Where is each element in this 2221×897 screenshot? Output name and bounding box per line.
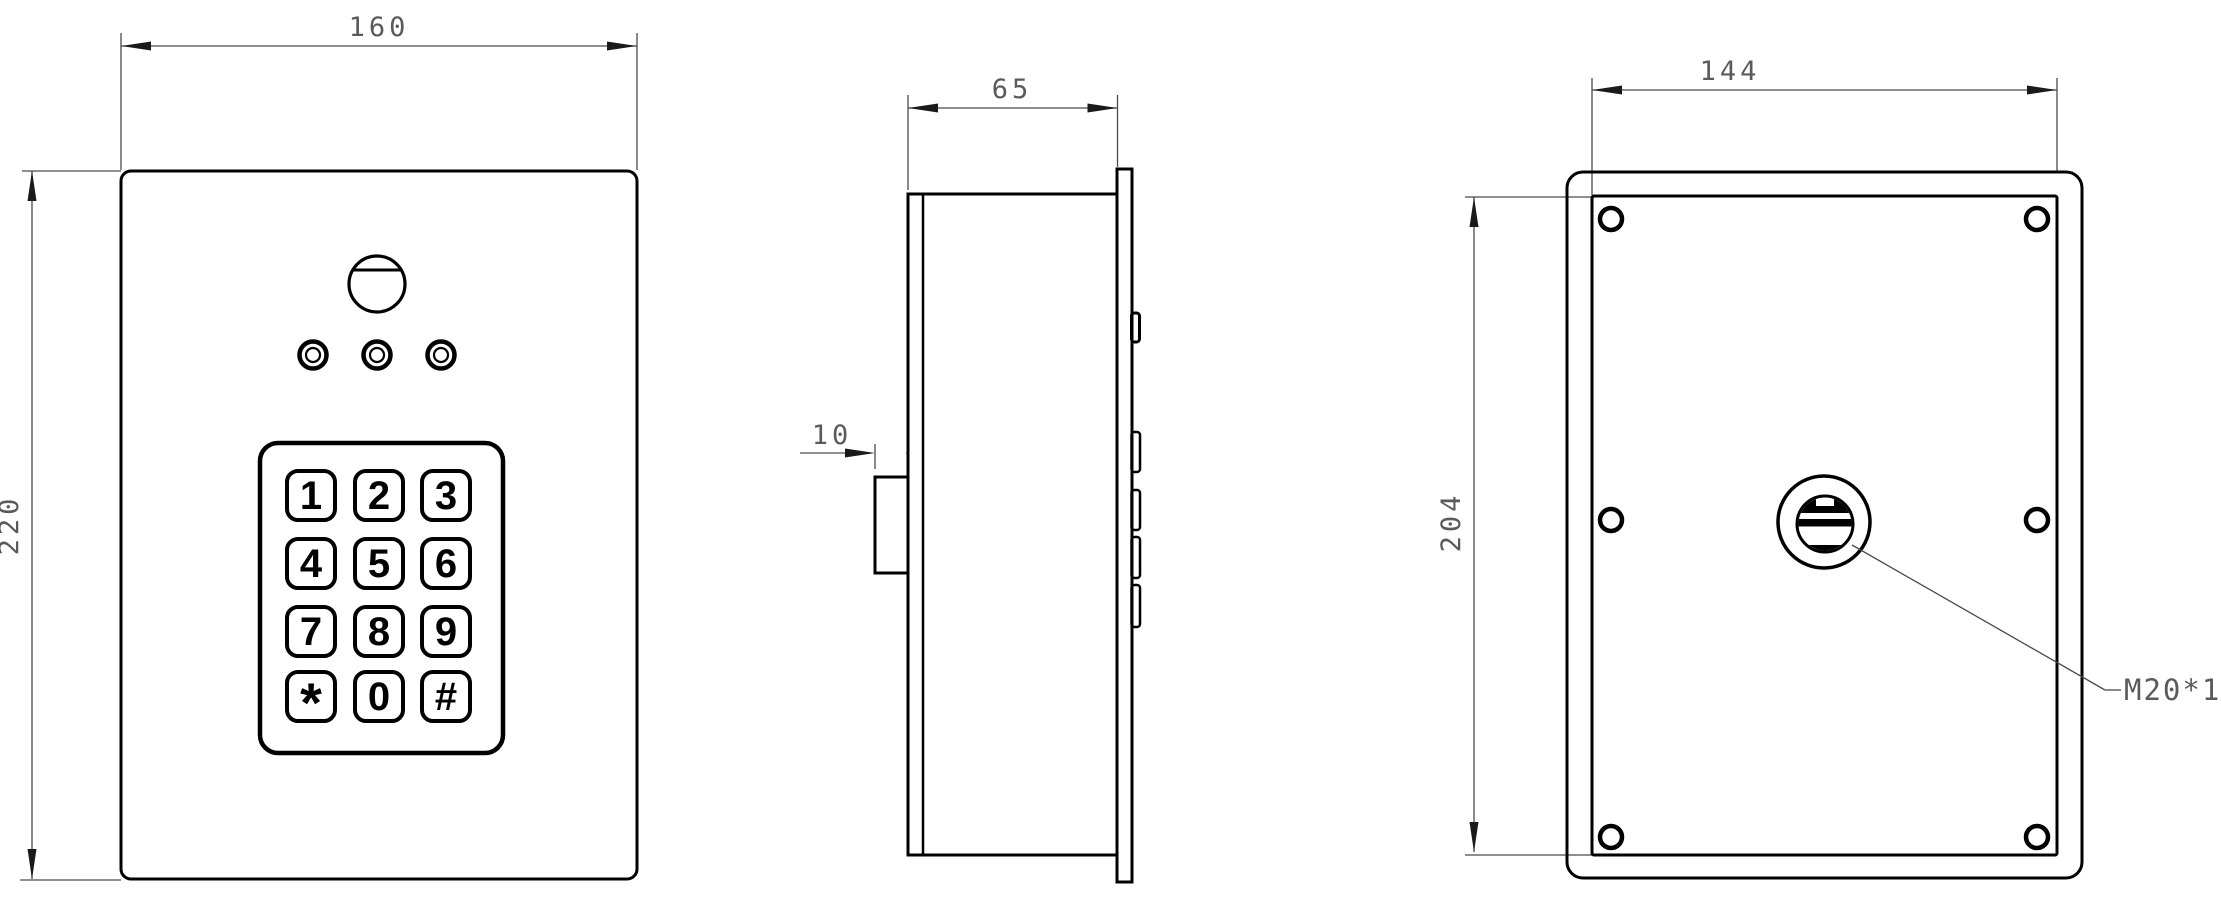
- keypad-key-8-label: 8: [368, 610, 390, 654]
- front-view: 160 220: [0, 12, 637, 880]
- dim-back-width-label: 144: [1700, 56, 1761, 87]
- front-panel-outline: [121, 171, 637, 879]
- keypad-key-5-label: 5: [368, 542, 390, 586]
- keypad: 1 2 3 4 5 6 7 8 9 * 0 #: [260, 443, 503, 753]
- screw-hole-top-left: [1600, 208, 1622, 230]
- dim-side-depth-label: 65: [992, 74, 1033, 105]
- keypad-key-2-label: 2: [368, 474, 390, 518]
- screw-hole-bottom-right: [2026, 826, 2048, 848]
- dim-front-height: 220: [0, 171, 121, 880]
- drawing-sheet: 160 220: [0, 0, 2221, 897]
- back-view: 144 204: [1436, 56, 2221, 878]
- dim-front-width-label: 160: [349, 12, 410, 43]
- speaker-hole: [349, 256, 405, 312]
- side-view: 65 10: [800, 74, 1140, 882]
- dim-back-width: 144: [1592, 56, 2057, 195]
- dim-back-height: 204: [1436, 197, 1592, 855]
- dim-front-height-label: 220: [0, 495, 25, 556]
- keypad-key-4-label: 4: [300, 542, 323, 586]
- dim-side-flange-label: 10: [812, 420, 853, 451]
- dim-front-width: 160: [121, 12, 637, 170]
- keypad-key-7-label: 7: [300, 610, 322, 654]
- screw-hole-mid-right: [2026, 509, 2048, 531]
- side-front-plate: [1117, 169, 1132, 882]
- screw-hole-bottom-left: [1600, 826, 1622, 848]
- keypad-key-9-label: 9: [435, 610, 457, 654]
- led-indicator-middle: [364, 342, 391, 369]
- led-indicator-left: [300, 342, 327, 369]
- led-indicator-right: [428, 342, 455, 369]
- screw-hole-top-right: [2026, 208, 2048, 230]
- keypad-key-1-label: 1: [300, 474, 322, 518]
- keypad-key-6-label: 6: [435, 542, 457, 586]
- dim-back-height-label: 204: [1436, 492, 1467, 553]
- side-led-bump: [1132, 313, 1140, 342]
- keypad-key-3-label: 3: [435, 474, 457, 518]
- gland-label: M20*1.5: [2124, 673, 2221, 707]
- keypad-key-star-label: *: [300, 671, 322, 734]
- dim-side-depth: 65: [908, 74, 1118, 190]
- cable-gland: [1778, 476, 1870, 568]
- gland-leader: M20*1.5: [1852, 545, 2221, 707]
- side-housing: [908, 194, 1117, 855]
- screw-hole-mid-left: [1600, 509, 1622, 531]
- side-rear-flange: [875, 477, 908, 573]
- keypad-key-hash-label: #: [435, 675, 457, 719]
- keypad-key-0-label: 0: [368, 675, 390, 719]
